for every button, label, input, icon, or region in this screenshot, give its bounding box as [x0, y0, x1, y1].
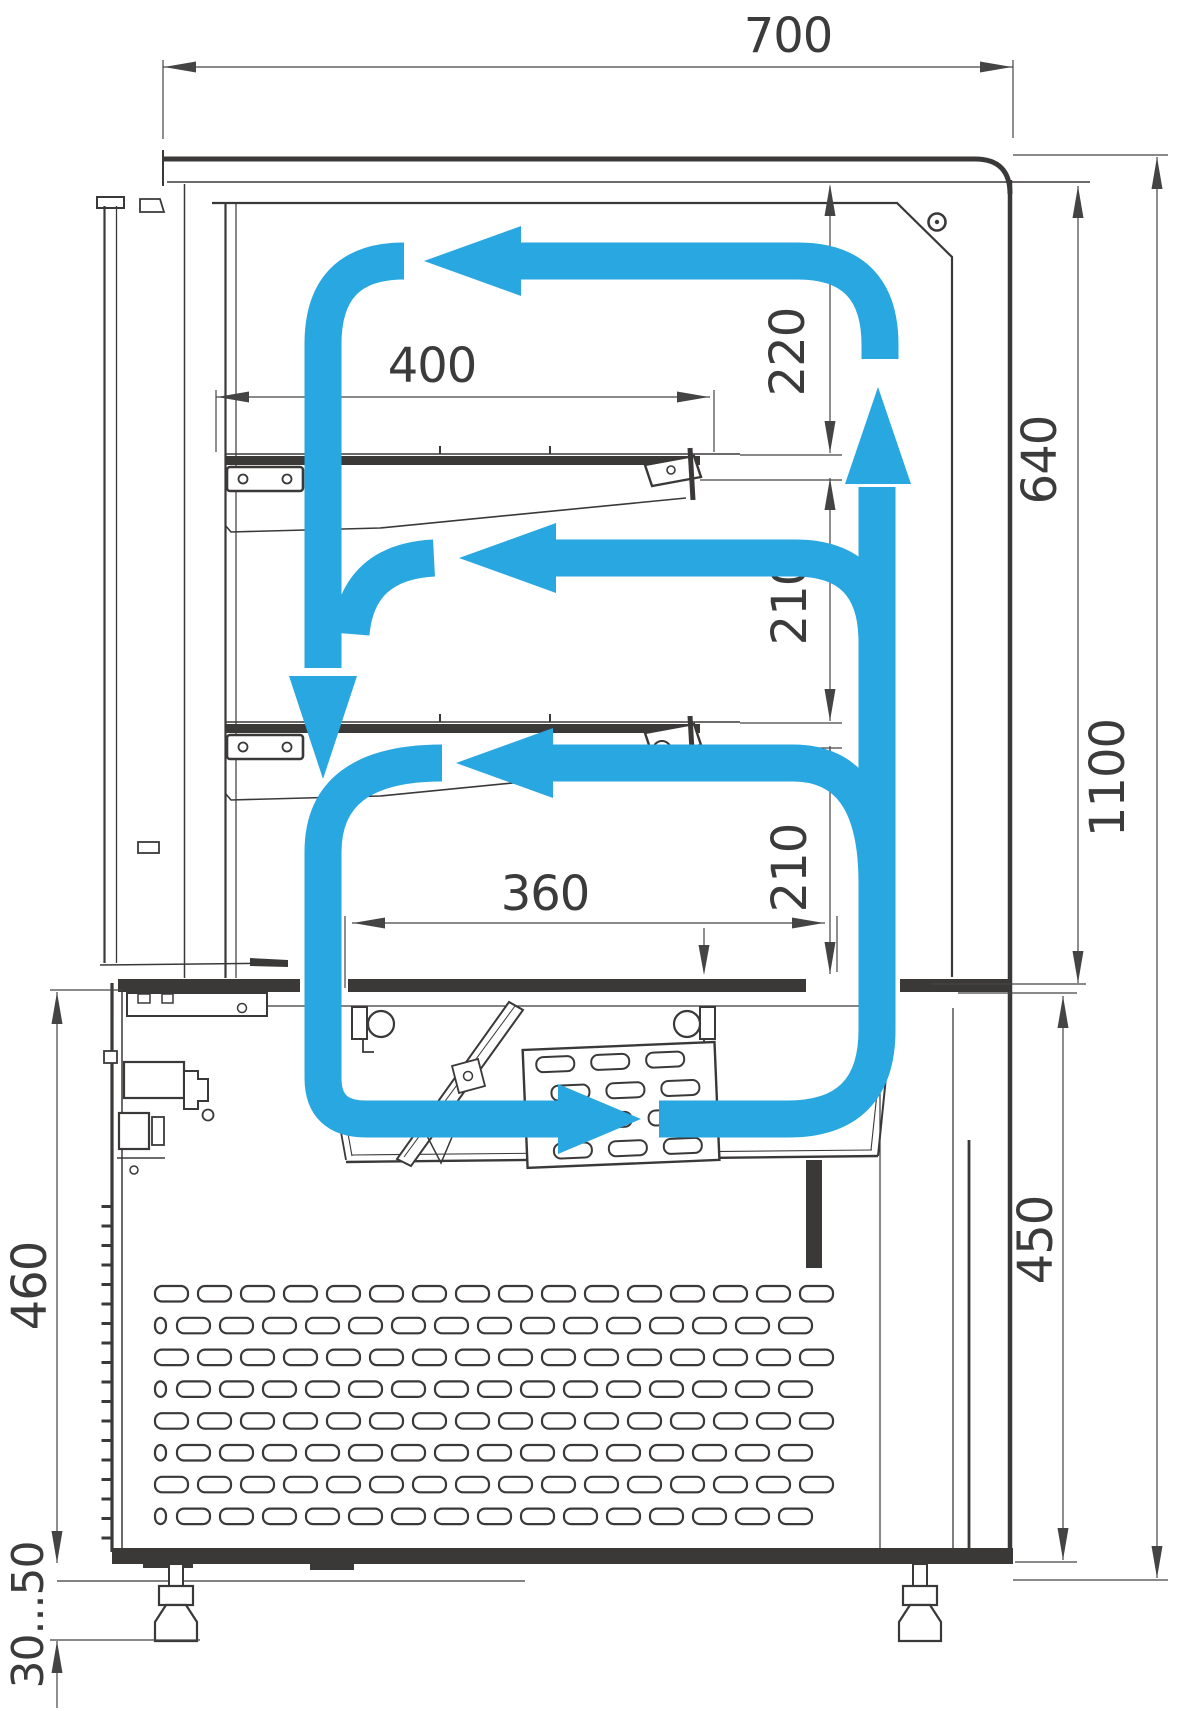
- label-base-left-height: 460: [2, 1242, 58, 1331]
- dim-1100: [1013, 155, 1168, 1580]
- label-base-right-height: 450: [1008, 1196, 1064, 1285]
- arrowhead-mid-left-icon: [459, 523, 556, 593]
- condenser-grille: [155, 1286, 833, 1524]
- technical-drawing: 700 400 360 220 210 210 640 1100 450 460…: [0, 0, 1177, 1711]
- shelf-1: [225, 446, 740, 532]
- label-lower-shelf-width: 360: [501, 866, 590, 922]
- foot-left: [155, 1564, 197, 1641]
- airflow-mid-band: [553, 558, 877, 642]
- deflector-panel: [397, 1002, 523, 1166]
- label-overall-height: 1100: [1080, 719, 1136, 837]
- label-top-width: 700: [744, 8, 833, 64]
- arrowhead-riser-up-icon: [845, 387, 911, 484]
- diagram-canvas: 700 400 360 220 210 210 640 1100 450 460…: [0, 0, 1177, 1711]
- label-top-clearance: 220: [760, 308, 816, 397]
- label-leg-adjustment: 30...50: [3, 1542, 54, 1689]
- adjustable-feet: [155, 1564, 941, 1641]
- upper-case: [97, 150, 1090, 1552]
- airflow-low-band: [550, 763, 877, 883]
- label-lower-clearance: 210: [762, 824, 818, 913]
- dim-30-50: [50, 1640, 200, 1708]
- arrowhead-top-left-icon: [424, 226, 521, 296]
- fan-left: [352, 1007, 394, 1052]
- dim-400: [216, 390, 714, 452]
- label-display-chamber-height: 640: [1012, 416, 1068, 505]
- door-latch-mechanism: [104, 1051, 214, 1174]
- airflow-mid-branch: [351, 558, 434, 634]
- dimension-lines: [50, 60, 1168, 1708]
- dim-700: [163, 60, 1013, 139]
- dim-360: [345, 916, 837, 988]
- foot-right: [899, 1564, 941, 1641]
- airflow-top-band: [520, 261, 880, 359]
- tray: [318, 1002, 893, 1168]
- label-upper-shelf-width: 400: [388, 338, 477, 394]
